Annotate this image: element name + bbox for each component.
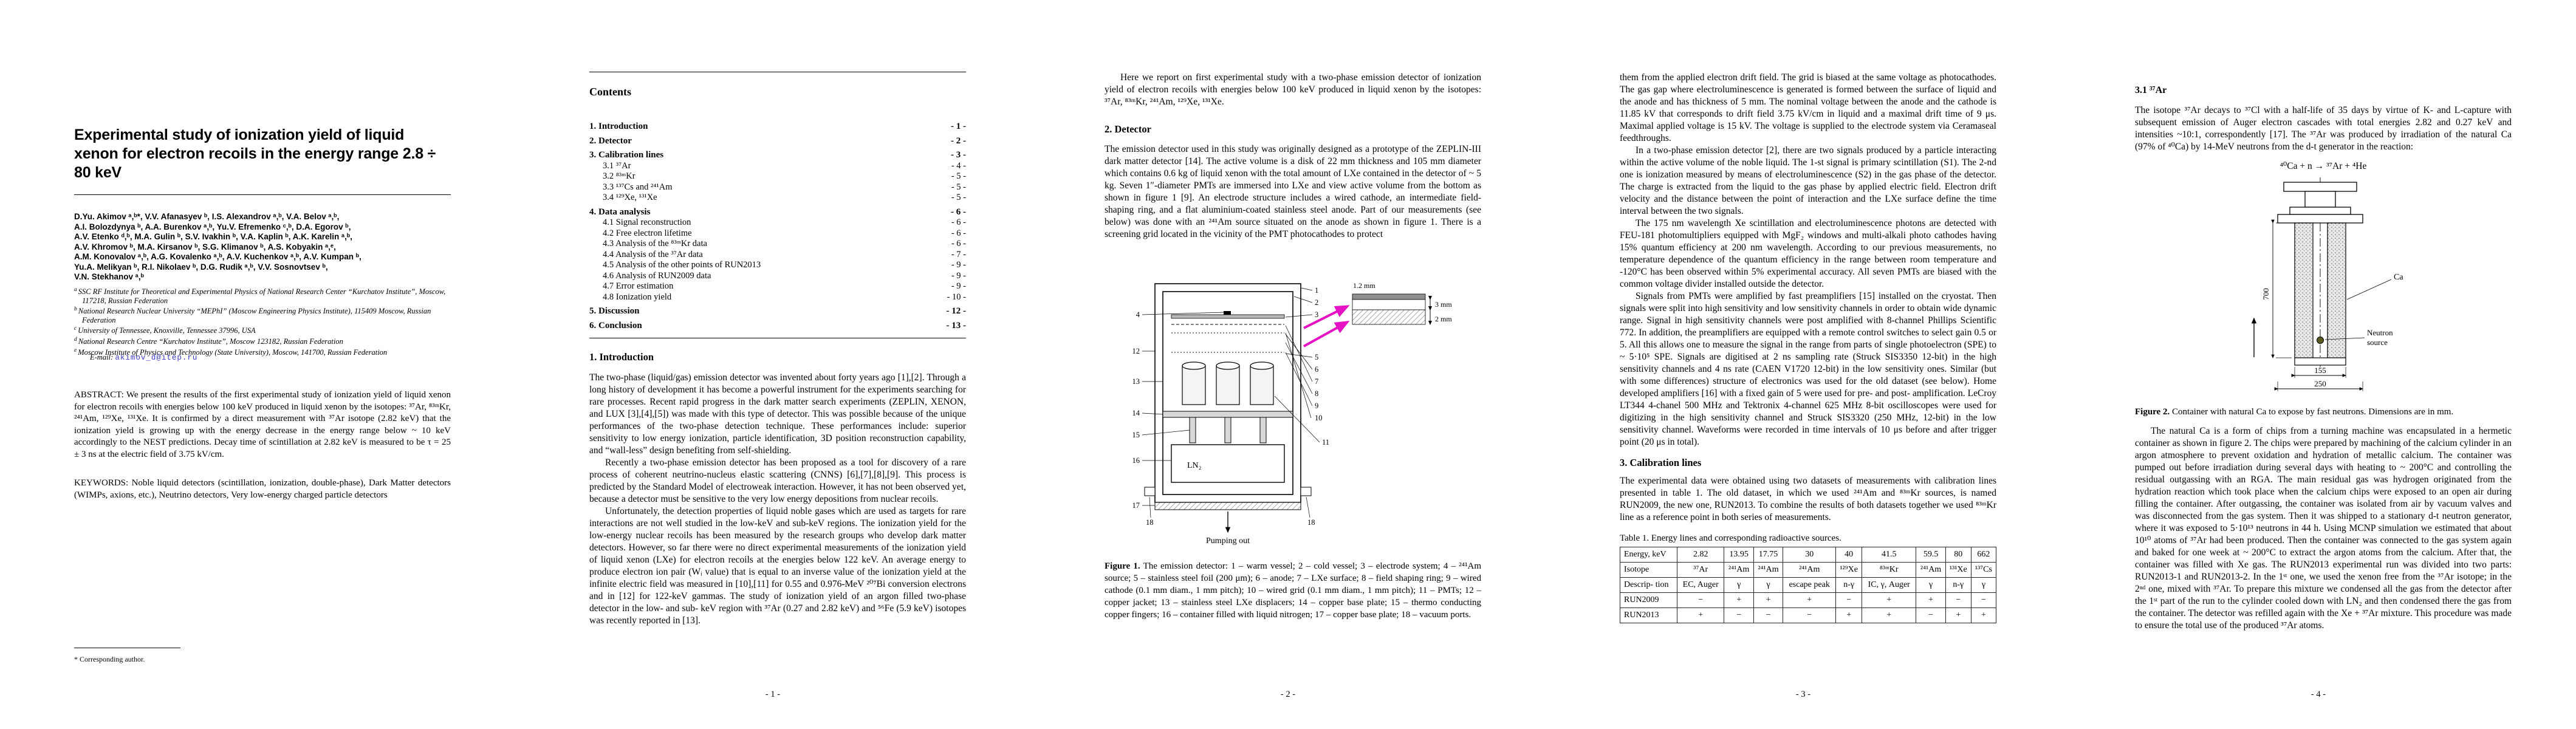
ca-leader [2347,279,2391,299]
paragraph: The natural Ca is a form of chips from a… [2135,425,2512,632]
author-line: A.M. Konovalov ᵃ,ᵇ, A.G. Kovalenko ᵃ,ᵇ, … [74,252,451,262]
affiliation: dNational Research Centre “Kurchatov Ins… [74,335,451,346]
toc-entry: 2. Detector- 2 - [589,136,966,146]
corresponding-author-footnote: * Corresponding author. [74,655,451,664]
toc-entry: 3.3 ¹³⁷Cs and ²⁴¹Am- 5 - [589,182,966,193]
svg-text:8: 8 [1315,389,1318,398]
email-label: E-mail: [90,353,113,361]
table-row: Energy, keV 2.8213.95 17.7530 4041.5 59.… [1620,547,1996,563]
svg-text:155: 155 [2314,366,2326,375]
figure-2-ca-container: Neutron source Ca 700 155 [2214,175,2433,398]
table-1-energy-lines: Energy, keV 2.8213.95 17.7530 4041.5 59.… [1620,547,1996,623]
table-1-caption: Table 1. Energy lines and corresponding … [1620,532,1996,544]
base-flange [1155,502,1301,510]
author-line: Yu.A. Melikyan ᵇ, R.I. Nikolaev ᵇ, D.G. … [74,262,451,273]
svg-text:2: 2 [1315,298,1318,307]
author-line: A.V. Khromov ᵇ, M.A. Kirsanov ᵇ, S.G. Kl… [74,242,451,253]
toc-entry: 4.5 Analysis of the other points of RUN2… [589,260,966,270]
toc-entry: 4.7 Error estimation- 9 - [589,281,966,292]
table-row: RUN2009 −+ ++ −+ +− − [1620,593,1996,608]
copper-fingers [1190,417,1266,443]
introduction-body: The two-phase (liquid/gas) emission dete… [589,372,966,627]
svg-text:18: 18 [1307,518,1315,527]
svg-text:18: 18 [1146,518,1154,527]
electrode-gap-inset: 1.2 mm 3 mm 2 mm [1352,281,1452,324]
pmt-array [1182,362,1273,405]
toc-entry: 4.8 Ionization yield- 10 - [589,292,966,303]
svg-text:13: 13 [1132,377,1140,386]
ca-label: Ca [2394,273,2403,282]
affiliation-marker: a [74,287,77,293]
author-line: A.V. Etenko ᵈ,ᵇ, M.A. Gulin ᵇ, S.V. Ivak… [74,232,451,242]
affiliation-text: SSC RF Institute for Theoretical and Exp… [78,287,446,305]
footnote-rule [74,648,180,648]
email-link[interactable]: akimov_d@itep.ru [115,354,197,362]
table-of-contents: 1. Introduction- 1 - 2. Detector- 2 - 3.… [589,117,966,330]
affiliation-marker: b [74,306,77,312]
toc-entry: 5. Discussion- 12 - [589,306,966,317]
svg-text:7: 7 [1315,377,1318,386]
paper-title: Experimental study of ionization yield o… [74,126,451,182]
author-line: A.I. Bolozdynya ᵇ, A.A. Burenkov ᵃ,ᵇ, Yu… [74,222,451,233]
paragraph: them from the applied electron drift fie… [1620,72,1996,145]
affiliation-text: National Research Centre “Kurchatov Inst… [78,337,343,346]
author-list: D.Yu. Akimov ᵃ,ᵇ*, V.V. Afanasyev ᵇ, I.S… [74,212,451,282]
toc-entry: 4. Data analysis- 6 - [589,207,966,217]
title-rule [74,194,451,195]
figure-1-caption: Figure 1. The emission detector: 1 – war… [1105,560,1481,621]
pumping-out-label: Pumping out [1206,536,1250,546]
author-line: V.N. Stekhanov ᵃ,ᵇ [74,272,451,282]
svg-text:5: 5 [1315,353,1318,361]
email-row: E-mail: akimov_d@itep.ru [74,353,467,362]
affiliation-list: aSSC RF Institute for Theoretical and Ex… [74,286,451,357]
page-contents-introduction: Contents 1. Introduction- 1 - 2. Detecto… [515,0,1030,729]
detector-lead: Here we report on first experimental stu… [1105,72,1481,108]
page-detector: Here we report on first experimental stu… [1030,0,1546,729]
affiliation-text: University of Tennessee, Knoxville, Tenn… [78,326,255,335]
keywords: KEYWORDS: Noble liquid detectors (scinti… [74,477,451,501]
figure-1-detector-schematic: LN₂ Pumping out 1.2 mm 3 mm 2 mm [1122,262,1464,551]
svg-text:17: 17 [1132,501,1140,510]
paragraph: Unfortunately, the detection properties … [589,505,966,627]
affiliation: cUniversity of Tennessee, Knoxville, Ten… [74,324,451,335]
svg-text:11: 11 [1322,438,1329,447]
toc-entry: 4.6 Analysis of RUN2009 data- 9 - [589,271,966,281]
paragraph: The emission detector used in this study… [1105,143,1481,241]
dim-2mm: 2 mm [1435,315,1452,323]
abstract: ABSTRACT: We present the results of the … [74,389,451,460]
svg-text:16: 16 [1132,456,1140,465]
dim-250: 250 [2278,379,2363,391]
page-calibration: them from the applied electron drift fie… [1546,0,2061,729]
paragraph: Recently a two-phase emission detector h… [589,457,966,505]
table-row: Isotope ³⁷Ar²⁴¹Am ²⁴¹Am²⁴¹Am ¹²⁹Xe⁸³ᵐKr … [1620,563,1996,578]
magenta-callout-arrows [1304,306,1348,346]
toc-entry: 6. Conclusion- 13 - [589,321,966,331]
ar37-body: The isotope ³⁷Ar decays to ³⁷Cl with a h… [2135,104,2512,153]
figure-1-caption-prefix: Figure 1. [1105,561,1140,571]
svg-text:14: 14 [1132,409,1140,417]
neutron-source-dot [2317,337,2324,344]
affiliation-marker: d [74,337,77,343]
detector-diagram: LN₂ Pumping out 1.2 mm 3 mm 2 mm [1122,262,1464,548]
detector-heading: 2. Detector [1105,123,1481,135]
calibration-heading: 3. Calibration lines [1620,457,1996,469]
paragraph: The 175 nm wavelength Xe scintillation a… [1620,217,1996,290]
ln2-label: LN₂ [1187,461,1202,470]
page-number: - 4 - [2061,690,2576,700]
svg-text:4: 4 [1136,310,1140,319]
copper-base-plate [1163,411,1293,417]
figure-1-caption-text: The emission detector: 1 – warm vessel; … [1105,561,1481,620]
toc-entry: 3.2 ⁸³ᵐKr- 5 - [589,171,966,182]
dim-1-2mm: 1.2 mm [1353,281,1375,290]
paragraph: The isotope ³⁷Ar decays to ³⁷Cl with a h… [2135,104,2512,153]
toc-entry: 4.1 Signal reconstruction- 6 - [589,217,966,228]
ca-container-diagram: Neutron source Ca 700 155 [2214,175,2433,395]
paragraph: The experimental data were obtained usin… [1620,475,1996,524]
toc-entry: 3.1 ³⁷Ar- 4 - [589,161,966,171]
affiliation-marker: c [74,326,77,332]
page-number: - 2 - [1030,690,1546,700]
introduction-heading: 1. Introduction [589,351,966,363]
container-flanges [2278,182,2363,223]
toc-entry: 4.4 Analysis of the ³⁷Ar data- 7 - [589,250,966,260]
svg-text:700: 700 [2261,288,2270,300]
contents-top-rule [589,72,966,72]
table-row: RUN2013 +− −− ++ −+ + [1620,608,1996,623]
svg-text:250: 250 [2314,379,2326,388]
svg-text:1: 1 [1315,286,1318,295]
contents-bottom-rule [589,338,966,338]
svg-text:15: 15 [1132,431,1140,439]
toc-entry: 3. Calibration lines- 3 - [589,150,966,160]
page-number: - 3 - [1546,690,2061,700]
table-row: Descrip- tion EC, Augerγ γescape peak n-… [1620,578,1996,593]
toc-entry: 3.4 ¹²⁹Xe, ¹³¹Xe- 5 - [589,193,966,203]
dim-700: 700 [2261,223,2292,358]
reaction-formula: ⁴⁰Ca + n → ³⁷Ar + ⁴He [2135,160,2512,172]
ar37-heading: 3.1 ³⁷Ar [2135,85,2512,96]
figure-2-caption-prefix: Figure 2. [2135,407,2170,417]
svg-text:3: 3 [1315,310,1318,319]
svg-text:10: 10 [1315,414,1323,422]
neutron-source-label-line1: Neutron [2367,328,2393,337]
svg-text:9: 9 [1315,402,1318,410]
toc-entry: 4.2 Free electron lifetime- 6 - [589,228,966,239]
figure-callout-numbers: 1 2 3 5 6 7 8 9 10 4 12 13 14 15 16 17 1… [1132,286,1330,527]
detector-continued-body: them from the applied electron drift fie… [1620,72,1996,623]
detector-body: The emission detector used in this study… [1105,143,1481,241]
paragraph: Signals from PMTs were amplified by fast… [1620,290,1996,448]
dim-3mm: 3 mm [1435,300,1452,309]
title-page: Experimental study of ionization yield o… [0,0,515,729]
electrode-stack [1171,311,1284,352]
figure-2-caption: Figure 2. Container with natural Ca to e… [2135,406,2512,418]
contents-heading: Contents [589,86,966,98]
ar37-body-continued: The natural Ca is a form of chips from a… [2135,425,2512,632]
paragraph: The two-phase (liquid/gas) emission dete… [589,372,966,457]
dim-155: 155 [2295,366,2346,378]
paragraph: In a two-phase emission detector [2], th… [1620,145,1996,217]
affiliation: aSSC RF Institute for Theoretical and Ex… [74,286,451,305]
paragraph: Here we report on first experimental stu… [1105,72,1481,108]
page-ar37: 3.1 ³⁷Ar The isotope ³⁷Ar decays to ³⁷Cl… [2061,0,2576,729]
svg-text:6: 6 [1315,365,1318,374]
toc-entry: 4.3 Analysis of the ⁸³ᵐKr data- 6 - [589,239,966,249]
affiliation-text: National Research Nuclear University “ME… [78,307,431,324]
svg-text:12: 12 [1132,347,1140,355]
affiliation: bNational Research Nuclear University “M… [74,305,451,324]
neutron-source-label-line2: source [2367,338,2388,347]
figure-2-caption-text: Container with natural Ca to expose by f… [2170,407,2453,417]
author-line: D.Yu. Akimov ᵃ,ᵇ*, V.V. Afanasyev ᵇ, I.S… [74,212,451,222]
page-number: - 1 - [515,690,1030,700]
toc-entry: 1. Introduction- 1 - [589,122,966,132]
